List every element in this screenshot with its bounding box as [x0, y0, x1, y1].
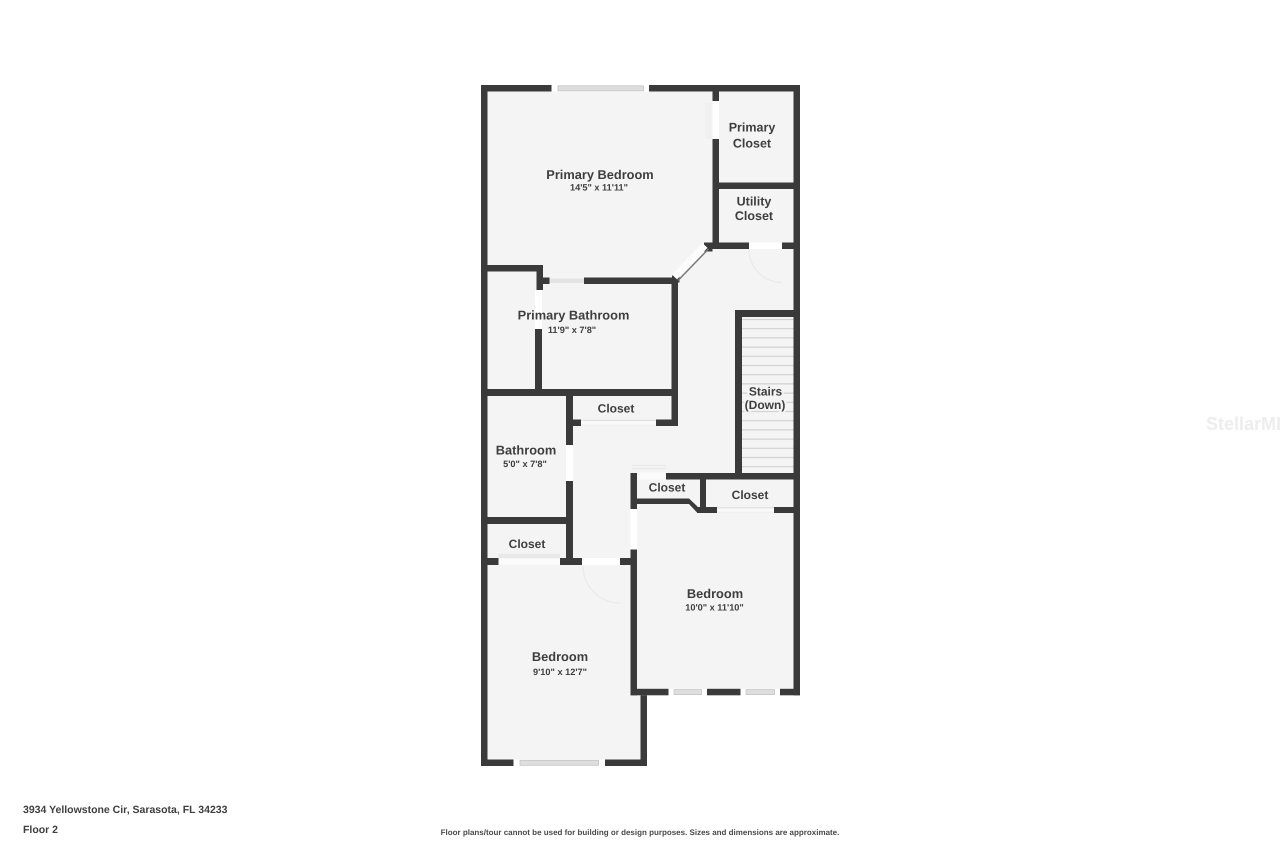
- svg-text:Bedroom: Bedroom: [687, 586, 743, 601]
- svg-text:Closet: Closet: [598, 402, 635, 416]
- svg-text:Closet: Closet: [735, 209, 774, 223]
- svg-text:14'5" x 11'11": 14'5" x 11'11": [570, 183, 628, 193]
- svg-text:Utility: Utility: [737, 195, 772, 209]
- svg-text:11'9" x 7'8": 11'9" x 7'8": [548, 325, 596, 335]
- svg-text:Primary Bedroom: Primary Bedroom: [546, 167, 653, 182]
- svg-text:Closet: Closet: [732, 488, 769, 502]
- svg-text:Bathroom: Bathroom: [496, 443, 556, 458]
- svg-text:(Down): (Down): [745, 398, 786, 412]
- svg-text:Closet: Closet: [733, 137, 772, 151]
- svg-text:Stairs: Stairs: [749, 385, 783, 399]
- svg-text:Primary Bathroom: Primary Bathroom: [518, 308, 630, 323]
- svg-text:Closet: Closet: [509, 537, 546, 551]
- svg-text:5'0" x 7'8": 5'0" x 7'8": [503, 459, 547, 469]
- svg-text:Bedroom: Bedroom: [532, 649, 588, 664]
- svg-text:9'10" x 12'7": 9'10" x 12'7": [533, 667, 587, 677]
- svg-text:10'0" x 11'10": 10'0" x 11'10": [685, 603, 744, 613]
- svg-text:Closet: Closet: [649, 481, 686, 495]
- svg-text:Primary: Primary: [729, 121, 776, 135]
